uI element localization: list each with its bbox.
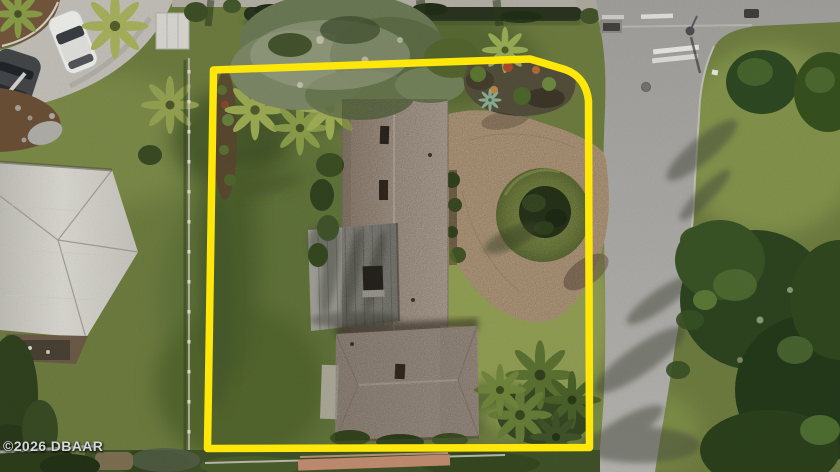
photo-texture bbox=[0, 0, 840, 472]
aerial-photo: ©2026 DBAAR bbox=[0, 0, 840, 472]
watermark: ©2026 DBAAR bbox=[3, 438, 103, 455]
aerial-photo-canvas bbox=[0, 0, 840, 472]
